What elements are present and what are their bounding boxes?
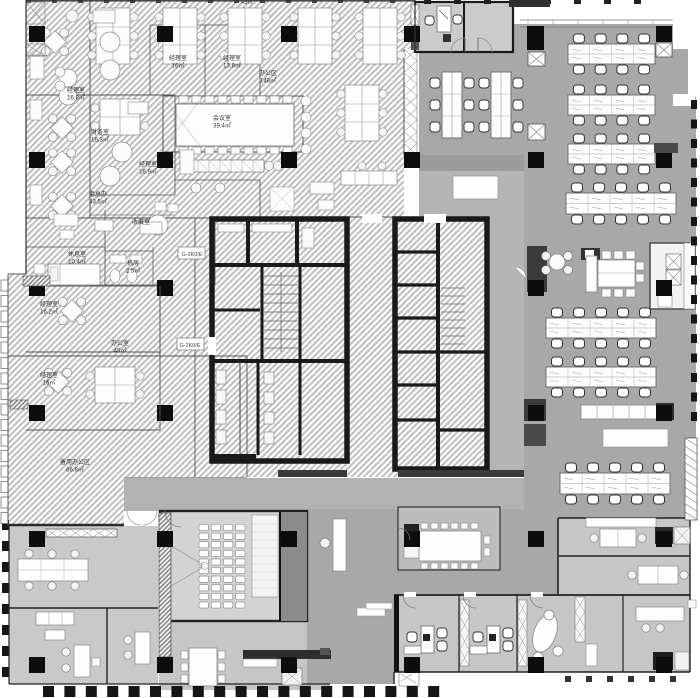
svg-text:13.8㎡: 13.8㎡ xyxy=(223,62,241,70)
svg-text:G-2K0/E: G-2K0/E xyxy=(179,343,200,349)
svg-text:43.5㎡: 43.5㎡ xyxy=(89,198,107,206)
svg-text:经理室: 经理室 xyxy=(223,54,241,62)
svg-text:2.5㎡: 2.5㎡ xyxy=(126,267,140,275)
svg-text:办公室: 办公室 xyxy=(111,339,129,347)
svg-text:经理室: 经理室 xyxy=(40,371,58,379)
svg-text:收藏室: 收藏室 xyxy=(132,218,150,226)
svg-text:16.9㎡: 16.9㎡ xyxy=(139,168,157,176)
svg-text:经理室: 经理室 xyxy=(139,160,157,168)
svg-text:办公区: 办公区 xyxy=(259,69,277,77)
svg-text:经理室: 经理室 xyxy=(169,54,187,62)
svg-text:148㎡: 148㎡ xyxy=(260,77,276,85)
svg-text:备用办公区: 备用办公区 xyxy=(60,458,90,466)
svg-text:16.3㎡: 16.3㎡ xyxy=(91,136,109,144)
svg-text:16㎡: 16㎡ xyxy=(172,62,185,70)
svg-text:48㎡: 48㎡ xyxy=(114,347,127,355)
svg-text:10.4㎡: 10.4㎡ xyxy=(68,258,86,266)
svg-text:G-2K0/E: G-2K0/E xyxy=(181,252,202,258)
svg-text:机房: 机房 xyxy=(127,259,139,267)
svg-text:43㎡: 43㎡ xyxy=(241,0,253,6)
svg-text:财务室: 财务室 xyxy=(91,128,109,136)
svg-text:会议室: 会议室 xyxy=(213,114,231,122)
svg-text:39.4㎡: 39.4㎡ xyxy=(213,122,231,130)
svg-text:16㎡: 16㎡ xyxy=(43,379,56,387)
svg-text:休息室: 休息室 xyxy=(68,250,86,258)
svg-text:16.9㎡: 16.9㎡ xyxy=(67,94,85,102)
svg-text:经理室: 经理室 xyxy=(67,86,85,94)
svg-text:16.2㎡: 16.2㎡ xyxy=(40,308,58,316)
svg-text:66.8㎡: 66.8㎡ xyxy=(66,466,84,474)
svg-text:老总办: 老总办 xyxy=(89,190,107,198)
svg-text:经理室: 经理室 xyxy=(40,300,58,308)
